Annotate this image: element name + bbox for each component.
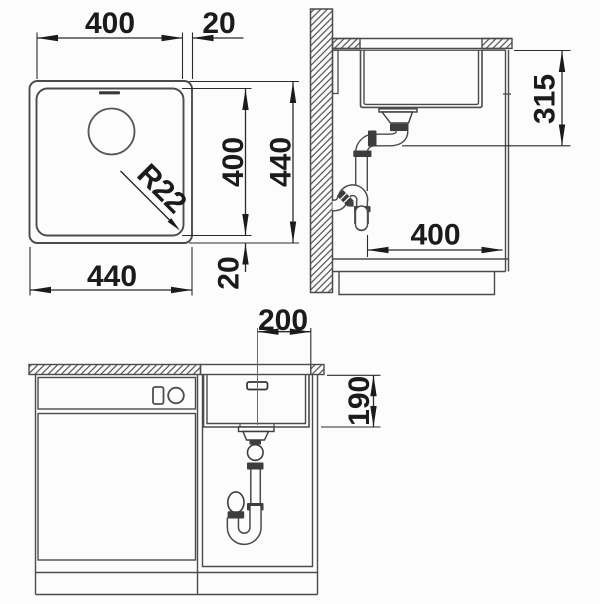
- svg-text:315: 315: [529, 74, 562, 124]
- svg-text:440: 440: [265, 137, 298, 187]
- svg-text:400: 400: [410, 219, 460, 252]
- svg-text:20: 20: [202, 7, 235, 40]
- svg-text:190: 190: [343, 376, 376, 426]
- svg-text:400: 400: [217, 137, 250, 187]
- svg-text:400: 400: [85, 7, 135, 40]
- svg-text:20: 20: [213, 256, 246, 289]
- svg-text:200: 200: [258, 304, 308, 337]
- svg-text:440: 440: [87, 260, 137, 293]
